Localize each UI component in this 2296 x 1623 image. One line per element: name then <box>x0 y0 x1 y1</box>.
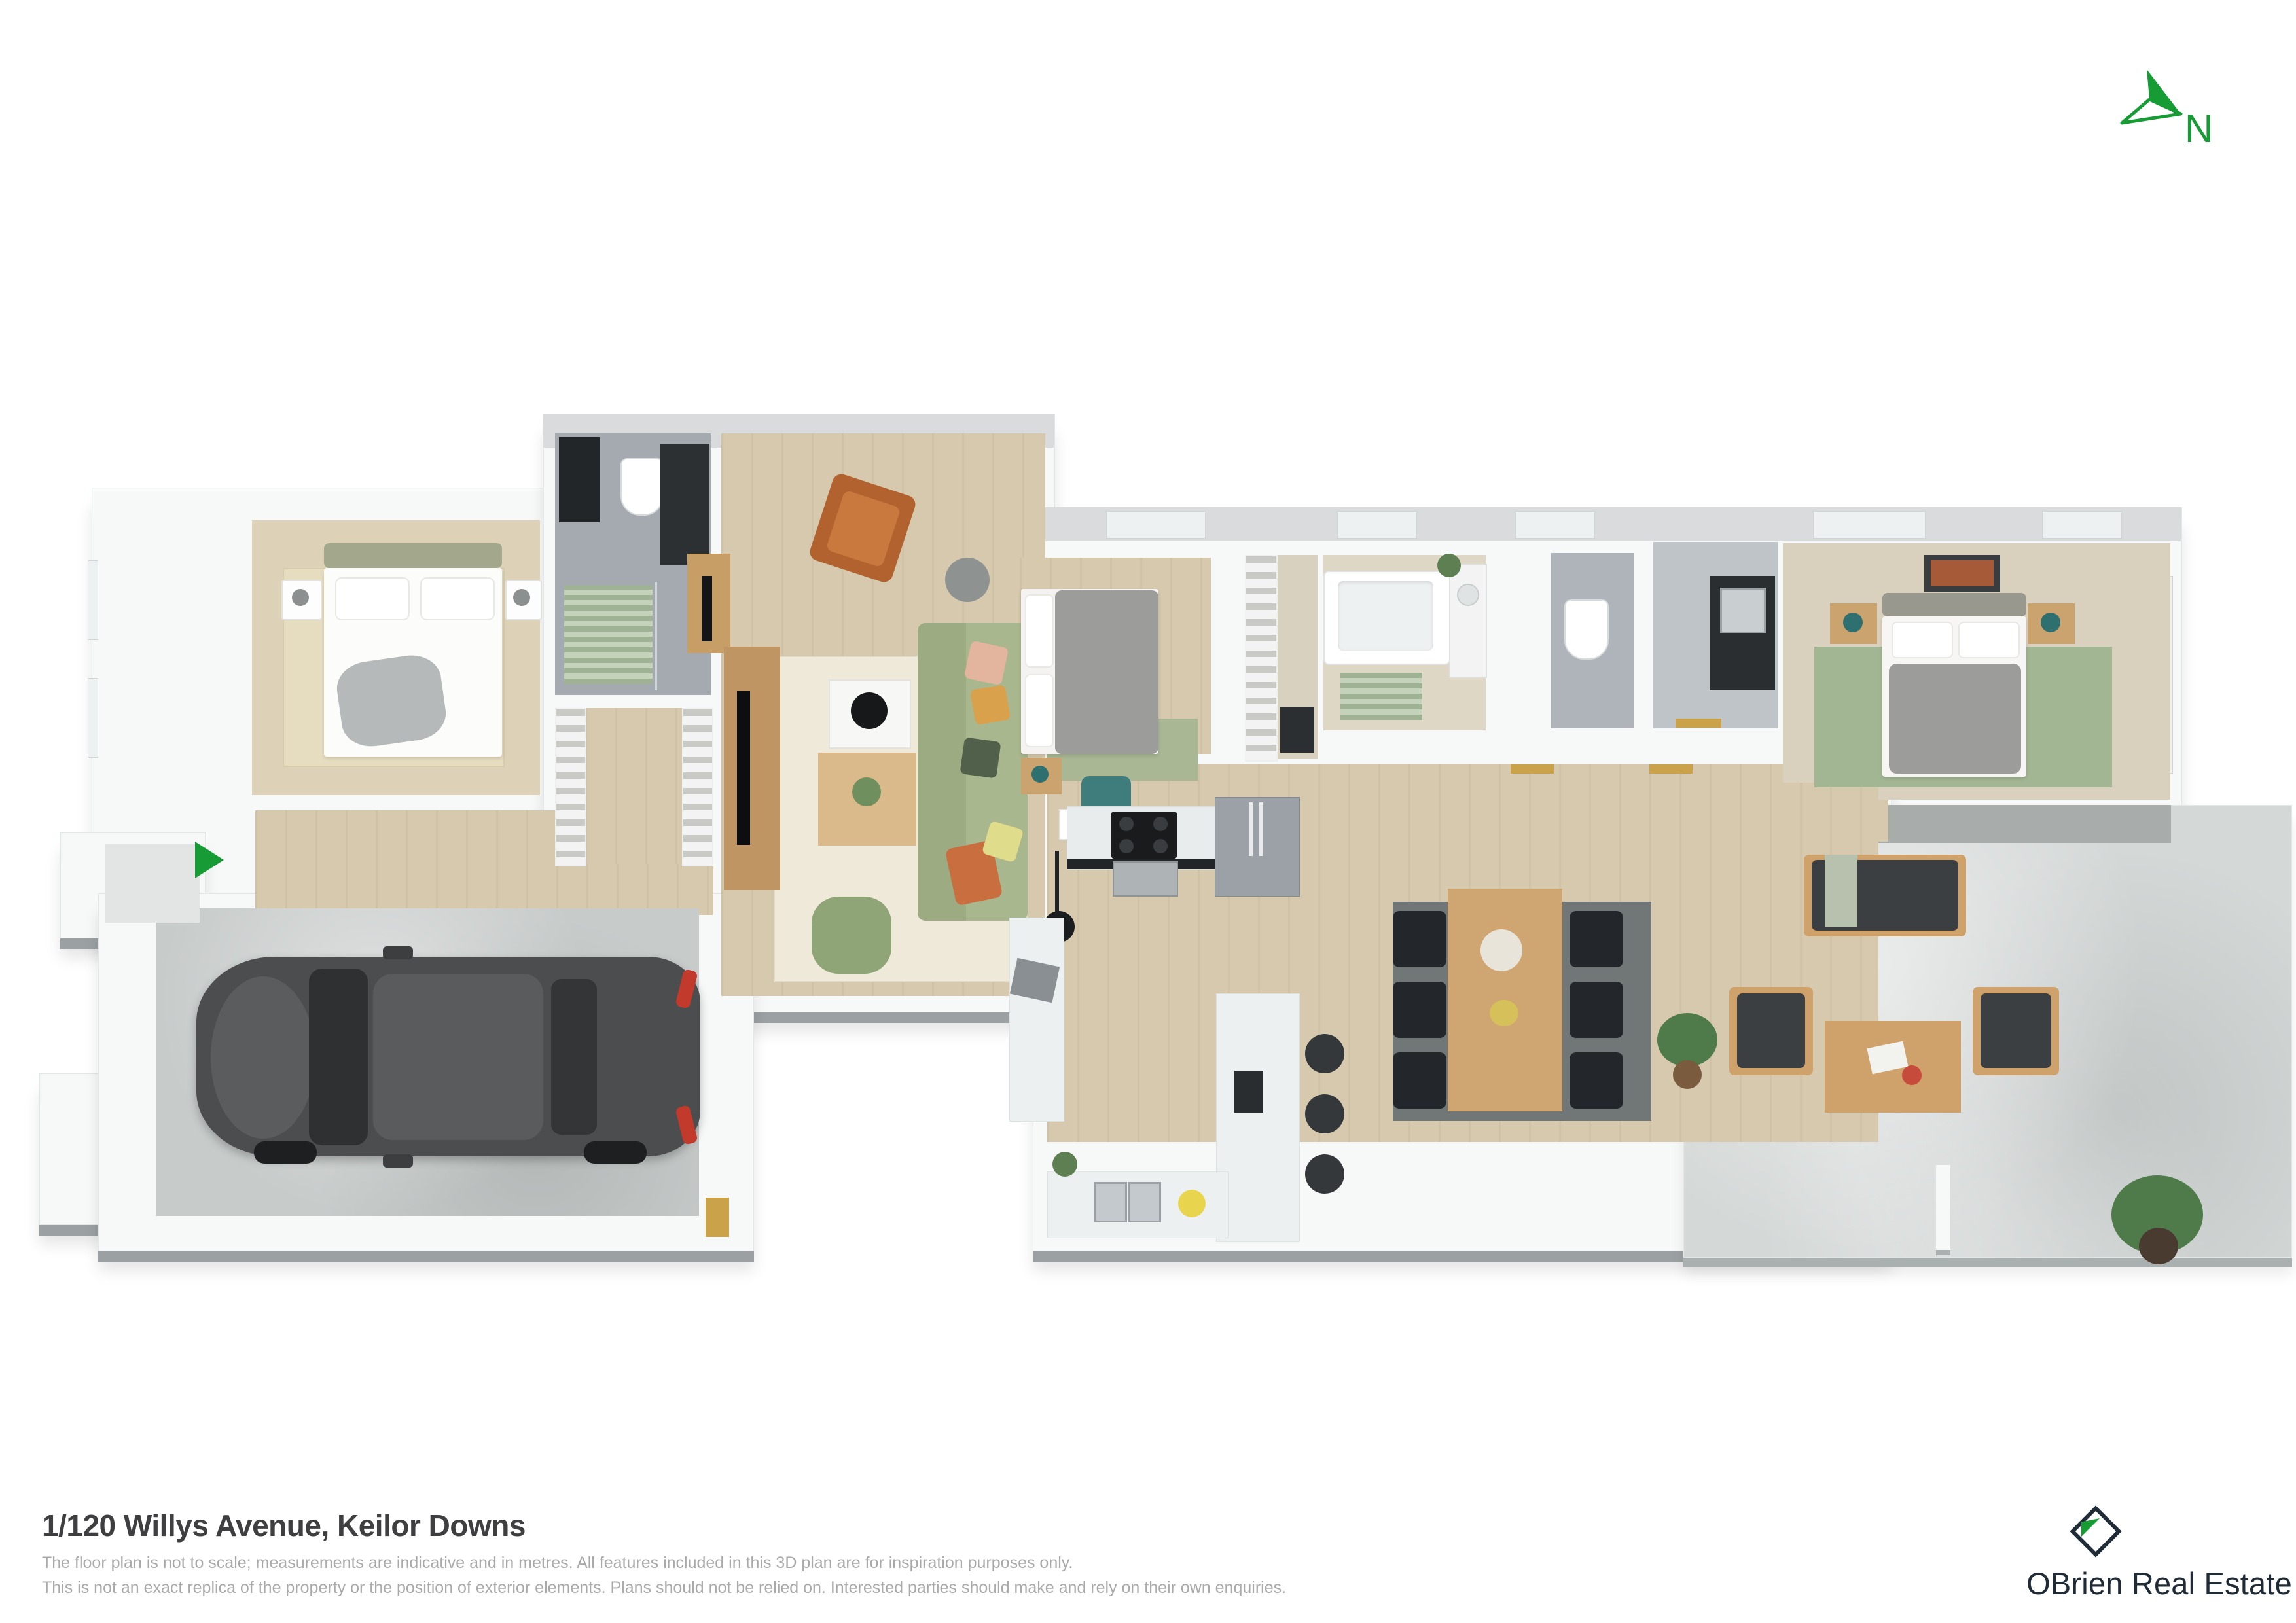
floor-plan <box>0 0 2296 1623</box>
island-bench <box>1216 993 1300 1242</box>
coffee-table-plant <box>852 777 881 806</box>
ensuite-toilet <box>620 458 664 516</box>
ensuite-shelf <box>559 437 600 522</box>
window-middle-5 <box>2042 511 2122 539</box>
window-middle-4 <box>1813 511 1926 539</box>
patio-plant-pot <box>2139 1228 2178 1264</box>
brand-logo: OBrien Real Estate <box>1957 1503 2296 1614</box>
porch-floor <box>105 844 200 923</box>
master-lamp-right <box>513 589 530 606</box>
car-wheel-rear <box>584 1141 647 1164</box>
ottoman-pouf <box>812 897 891 974</box>
coffee-table-tray <box>851 692 888 729</box>
laundry-sink <box>1720 588 1766 633</box>
dining-chair-r1 <box>1570 911 1623 967</box>
robe1-rack-right <box>682 708 713 866</box>
tv-screen <box>737 691 750 845</box>
bedroom2-lamp <box>1031 766 1049 783</box>
kitchen-sink-2 <box>1128 1182 1161 1222</box>
sofa-cushion-mustard <box>970 685 1011 726</box>
master-pillow-left <box>335 577 410 620</box>
bench-plant <box>1052 1152 1077 1177</box>
car-roof <box>373 974 543 1140</box>
fridge-handle-2 <box>1259 802 1263 856</box>
floor-lamp-stem <box>1055 851 1059 919</box>
door-threshold-1 <box>1511 764 1554 774</box>
dining-plant-pot <box>1673 1060 1702 1089</box>
floorplan-page: { "compass": { "label": "N" }, "footer":… <box>0 0 2296 1623</box>
burner-4 <box>1153 839 1168 853</box>
ensuite-shower-mat <box>564 586 653 684</box>
dining-plant-foliage <box>1657 1013 1717 1067</box>
west-bench <box>1009 918 1064 1122</box>
dining-chair-l3 <box>1393 1052 1446 1109</box>
dining-centerpiece <box>1480 929 1522 971</box>
fruit-bowl <box>1490 1000 1518 1026</box>
dining-chair-l1 <box>1393 911 1446 967</box>
bedroom2-duvet <box>1055 590 1158 754</box>
disclaimer-line-2: This is not an exact replica of the prop… <box>42 1578 1286 1597</box>
master-pillow-right <box>420 577 495 620</box>
window-middle-1 <box>1106 511 1206 539</box>
brand-name: OBrien Real Estate <box>1957 1565 2292 1601</box>
bath-vanity <box>1449 564 1487 678</box>
outdoor-chair-right-cushion <box>1981 993 2051 1068</box>
window-middle-2 <box>1337 511 1417 539</box>
outdoor-plate <box>1902 1065 1922 1085</box>
lemon-bowl <box>1178 1190 1206 1217</box>
dining-chair-l2 <box>1393 982 1446 1038</box>
bathtub-basin <box>1338 581 1433 651</box>
bath-basin <box>1457 584 1479 606</box>
window-master-1 <box>88 560 98 640</box>
fridge <box>1215 797 1300 897</box>
bath-plant <box>1437 554 1461 577</box>
coffee-machine <box>1234 1071 1263 1113</box>
bedroom2-pillow-1 <box>1025 594 1054 668</box>
garage-internal-door <box>706 1198 729 1237</box>
fridge-handle-1 <box>1249 802 1253 856</box>
oven <box>1113 861 1178 897</box>
car-rear-window <box>551 979 597 1135</box>
dining-chair-r2 <box>1570 982 1623 1038</box>
bedroom3-headboard <box>1882 593 2026 616</box>
bar-stool-3 <box>1305 1154 1344 1194</box>
patio-wall-nub <box>1936 1165 1950 1250</box>
outdoor-sofa-throw <box>1825 855 1857 927</box>
sofa-cushion-green <box>960 737 1001 778</box>
car-mirror-bottom <box>383 1154 413 1168</box>
bedroom3-lamp-left <box>1843 613 1863 632</box>
disclaimer-line-1: The floor plan is not to scale; measurem… <box>42 1554 1073 1573</box>
burner-1 <box>1119 817 1134 831</box>
bath-mat <box>1340 673 1422 720</box>
car-bonnet <box>211 976 315 1139</box>
outdoor-chair-left-cushion <box>1737 993 1805 1068</box>
master-lamp-left <box>292 589 309 606</box>
bar-stool-1 <box>1305 1034 1344 1073</box>
robe1-rack-left <box>555 708 586 866</box>
door-threshold-2 <box>1649 764 1693 774</box>
master-bed-headboard <box>324 543 502 568</box>
dresser-mirror <box>702 576 712 641</box>
laundry-door-threshold <box>1676 719 1721 728</box>
brand-logo-diamond-icon <box>2070 1505 2121 1557</box>
window-middle-3 <box>1515 511 1595 539</box>
bar-stool-2 <box>1305 1094 1344 1133</box>
bedroom2-pillow-2 <box>1025 674 1054 747</box>
robe2-drawers <box>1280 707 1314 753</box>
car-mirror-top <box>383 946 413 959</box>
ensuite-vanity <box>660 444 709 565</box>
bedroom3-pillow-left <box>1892 622 1953 658</box>
burner-2 <box>1153 817 1168 831</box>
kitchen-sink-1 <box>1094 1182 1127 1222</box>
bedroom3-pillow-right <box>1958 622 2020 658</box>
car-windshield <box>309 969 368 1145</box>
bedroom3-lamp-right <box>2041 613 2060 632</box>
burner-3 <box>1119 839 1134 853</box>
dining-chair-r3 <box>1570 1052 1623 1109</box>
car-wheel-front <box>254 1141 317 1164</box>
side-table <box>945 558 990 602</box>
entry-arrow-icon <box>195 842 224 878</box>
property-title: 1/120 Willys Avenue, Keilor Downs <box>42 1508 526 1543</box>
wc-toilet <box>1564 599 1609 660</box>
sofa-cushion-pink <box>964 641 1009 686</box>
bedroom3-artwork-print <box>1931 560 1994 586</box>
bedroom3-duvet <box>1889 664 2021 774</box>
tv-unit <box>724 647 780 890</box>
window-master-2 <box>88 678 98 758</box>
robe2-rack <box>1245 555 1278 762</box>
ensuite-shower-glass <box>655 582 657 690</box>
